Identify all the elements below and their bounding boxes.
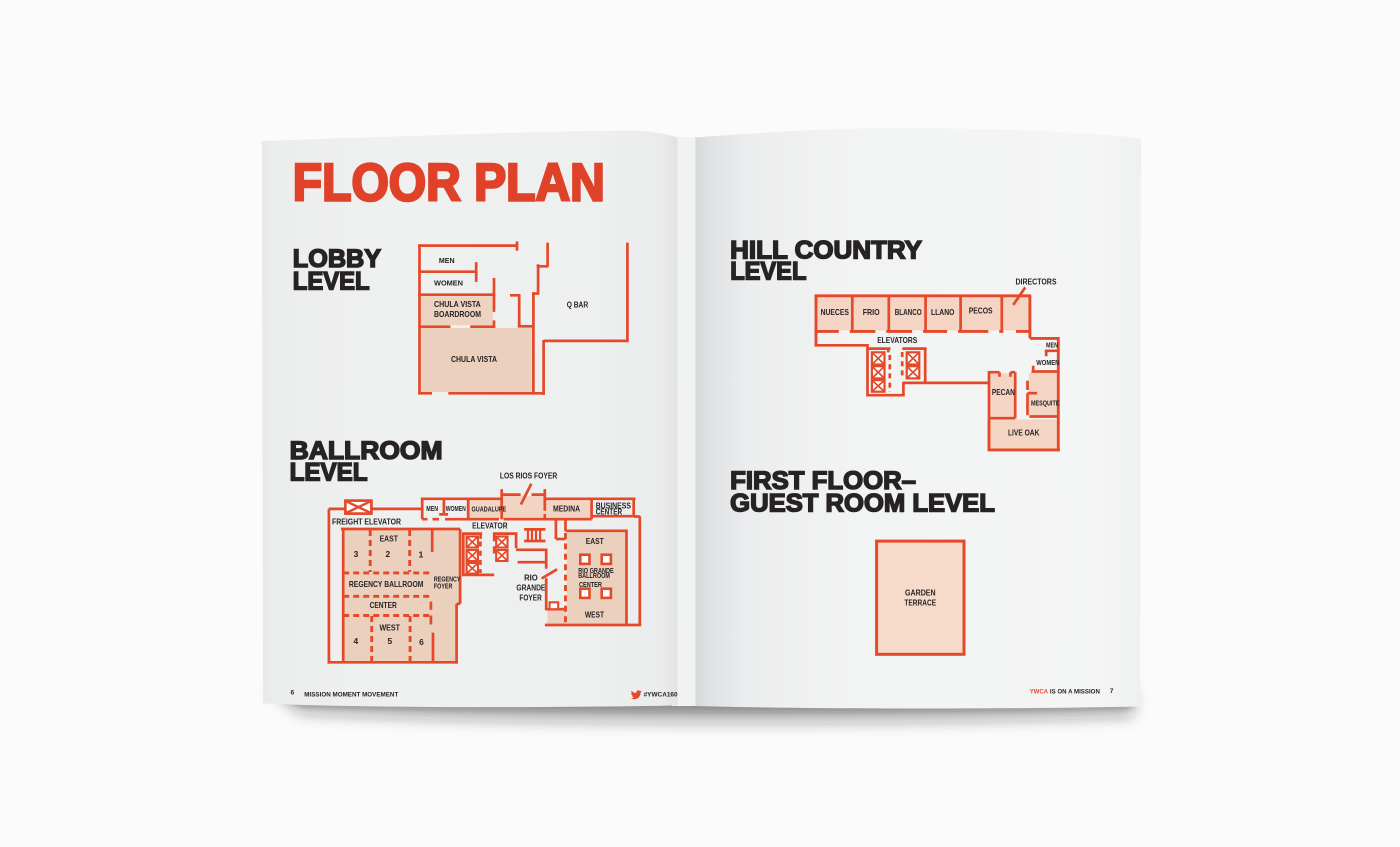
svg-text:ELEVATORS: ELEVATORS [877, 335, 917, 345]
svg-text:EAST: EAST [380, 534, 399, 544]
svg-text:GUEST ROOM LEVEL: GUEST ROOM LEVEL [730, 490, 995, 518]
svg-text:LEVEL: LEVEL [293, 267, 370, 295]
svg-text:FOYER: FOYER [434, 582, 453, 591]
svg-text:BALLROOM: BALLROOM [578, 571, 610, 580]
svg-text:CHULA VISTA: CHULA VISTA [451, 354, 498, 364]
svg-text:GRANDE: GRANDE [516, 583, 545, 593]
svg-text:LEVEL: LEVEL [290, 459, 368, 487]
svg-text:EAST: EAST [586, 536, 605, 546]
svg-text:LOS RIOS FOYER: LOS RIOS FOYER [500, 470, 557, 480]
svg-text:CHULA VISTA: CHULA VISTA [434, 299, 481, 309]
svg-text:YWCA: YWCA [1030, 689, 1049, 696]
svg-text:FLOOR PLAN: FLOOR PLAN [293, 154, 605, 213]
svg-text:LLANO: LLANO [931, 308, 955, 317]
svg-text:GARDEN: GARDEN [905, 587, 936, 597]
svg-text:MESQUITE: MESQUITE [1031, 399, 1059, 408]
svg-text:2: 2 [386, 549, 391, 559]
svg-text:WOMEN: WOMEN [434, 279, 463, 288]
svg-text:WEST: WEST [585, 610, 605, 620]
svg-text:ELEVATOR: ELEVATOR [472, 521, 508, 531]
svg-text:7: 7 [1110, 688, 1114, 695]
svg-text:WOMEN: WOMEN [446, 504, 466, 513]
svg-text:MEN: MEN [1046, 340, 1058, 349]
svg-text:PECAN: PECAN [992, 387, 1015, 397]
svg-text:NUECES: NUECES [821, 308, 850, 317]
svg-text:IS ON A MISSION: IS ON A MISSION [1050, 689, 1100, 696]
svg-text:RIO: RIO [524, 573, 538, 583]
svg-text:Q BAR: Q BAR [567, 299, 589, 309]
svg-text:3: 3 [354, 549, 359, 559]
svg-text:TERRACE: TERRACE [904, 598, 936, 608]
svg-text:WOMEN: WOMEN [1036, 358, 1059, 367]
svg-text:FRIO: FRIO [863, 308, 880, 317]
svg-text:6: 6 [291, 690, 295, 697]
svg-text:5: 5 [388, 636, 393, 646]
svg-text:DIRECTORS: DIRECTORS [1016, 277, 1057, 287]
svg-text:FREIGHT ELEVATOR: FREIGHT ELEVATOR [332, 517, 401, 527]
svg-text:MEN: MEN [439, 256, 455, 265]
svg-text:MEDINA: MEDINA [553, 504, 580, 514]
svg-text:REGENCY BALLROOM: REGENCY BALLROOM [349, 579, 424, 589]
svg-text:LIVE OAK: LIVE OAK [1008, 428, 1039, 438]
svg-text:CENTER: CENTER [370, 600, 397, 610]
svg-text:FOYER: FOYER [519, 593, 541, 603]
svg-text:MISSION MOMENT MOVEMENT: MISSION MOMENT MOVEMENT [304, 692, 398, 699]
svg-text:GUADALUPE: GUADALUPE [472, 505, 507, 514]
svg-text:1: 1 [419, 550, 424, 560]
svg-text:WEST: WEST [380, 622, 401, 632]
svg-text:MEN: MEN [426, 504, 438, 513]
svg-text:CENTER: CENTER [596, 507, 623, 517]
svg-text:PECOS: PECOS [969, 307, 993, 316]
svg-text:LEVEL: LEVEL [730, 258, 806, 286]
svg-text:4: 4 [354, 636, 359, 646]
svg-text:BOARDROOM: BOARDROOM [434, 309, 481, 319]
svg-text:#YWCA160: #YWCA160 [644, 691, 678, 698]
svg-text:CENTER: CENTER [579, 580, 602, 589]
svg-text:6: 6 [419, 637, 424, 647]
svg-text:BLANCO: BLANCO [895, 308, 922, 317]
